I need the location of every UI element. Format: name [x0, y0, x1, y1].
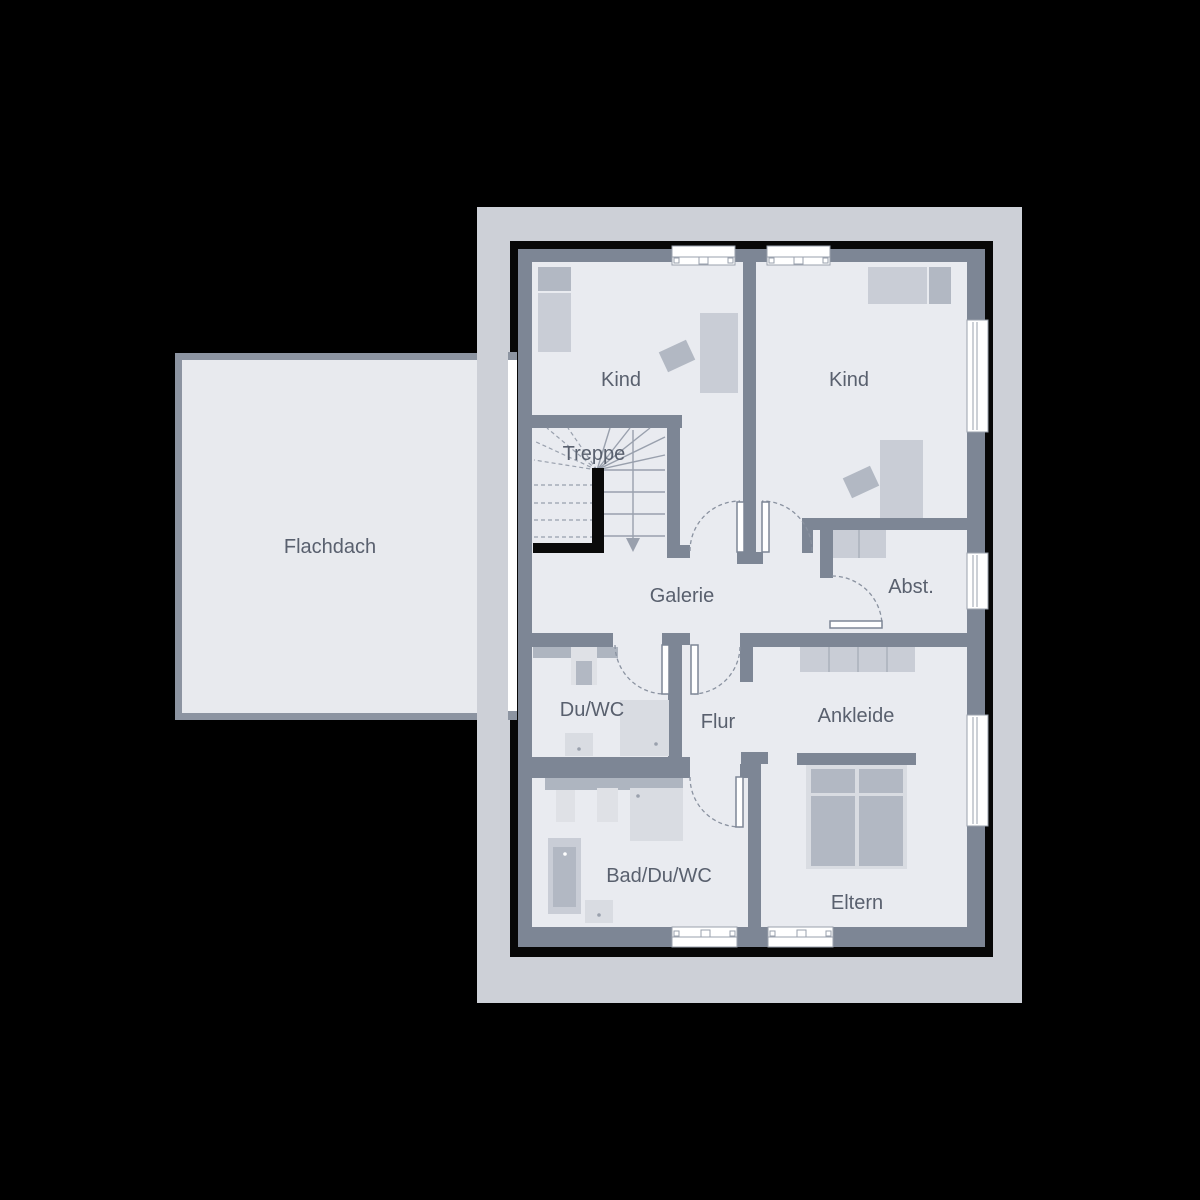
door-leaf — [662, 645, 669, 694]
drain-dot — [636, 794, 640, 798]
toilet — [585, 900, 613, 923]
bathtub-inner — [553, 847, 576, 907]
room-label-kind-left: Kind — [601, 369, 641, 391]
window-jamb — [508, 352, 517, 360]
wall-abst-left — [820, 518, 833, 578]
floor-plan-canvas: Flachdach Kind Kind Treppe Galerie Abst.… — [0, 0, 1200, 1200]
bed — [868, 267, 927, 304]
door-leaf — [736, 777, 743, 827]
bed — [538, 293, 571, 352]
washbasin — [556, 790, 575, 822]
window-top-right — [767, 246, 830, 265]
room-label-treppe: Treppe — [563, 443, 626, 465]
washbasin-bowl — [576, 661, 592, 685]
window-right-eltern — [967, 715, 988, 826]
wall-galerie-ankleide — [740, 633, 967, 647]
drain-dot — [577, 747, 581, 751]
bed-pillow — [811, 769, 855, 793]
drain-dot — [654, 742, 658, 746]
room-label-flur: Flur — [701, 711, 736, 733]
desk — [880, 440, 923, 518]
bed-pillow — [929, 267, 951, 304]
room-label-badduwc: Bad/Du/WC — [606, 865, 712, 887]
stair-wall-black — [533, 543, 604, 553]
window-bottom-left — [672, 927, 737, 947]
stair-wall-black — [592, 468, 604, 553]
wall-flur-eltern — [748, 752, 761, 927]
washbasin — [597, 788, 618, 822]
door-leaf — [691, 645, 698, 694]
wall-kind-divider — [743, 262, 756, 552]
drain-dot — [563, 852, 567, 856]
wall-galerie-duwc — [532, 633, 613, 647]
wall-stair-corner — [667, 545, 690, 558]
shower — [620, 700, 669, 756]
window-right-abst — [967, 553, 988, 609]
desk — [700, 313, 738, 393]
wall-duwc-right — [668, 633, 682, 770]
room-label-galerie: Galerie — [650, 585, 714, 607]
wall-bad-top — [532, 757, 690, 778]
ankleide-wardrobe — [800, 647, 915, 672]
room-label-eltern: Eltern — [831, 892, 883, 914]
bed-mattress — [811, 796, 855, 866]
wall-kind-divider-cap — [737, 552, 763, 564]
window-right-kind — [967, 320, 988, 432]
room-label-flachdach: Flachdach — [284, 536, 376, 558]
eltern-bed — [806, 765, 907, 869]
bed-pillow — [538, 267, 571, 291]
wall-bad-cap — [740, 764, 748, 778]
drain-dot — [597, 913, 601, 917]
window-jamb — [508, 711, 517, 720]
room-label-duwc: Du/WC — [560, 699, 624, 721]
window-top-left — [672, 246, 735, 265]
wall-bed-headboard — [797, 753, 916, 765]
wall-flur-stub — [740, 633, 753, 682]
door-leaf — [830, 621, 882, 628]
window-glass — [508, 360, 517, 711]
left-window-band — [508, 352, 517, 720]
floor-plan-drawing: Flachdach Kind Kind Treppe Galerie Abst.… — [0, 0, 1200, 1200]
wall-stair-right — [667, 415, 680, 558]
wall-stair-top — [532, 415, 682, 428]
door-leaf — [737, 502, 744, 552]
bed-mattress — [859, 796, 903, 866]
room-label-kind-right: Kind — [829, 369, 869, 391]
toilet — [565, 733, 593, 756]
room-label-ankleide: Ankleide — [818, 705, 895, 727]
window-bottom-right — [768, 927, 833, 947]
room-label-abst: Abst. — [888, 576, 934, 598]
bed-pillow — [859, 769, 903, 793]
abst-shelf — [833, 530, 886, 558]
door-leaf — [762, 502, 769, 552]
